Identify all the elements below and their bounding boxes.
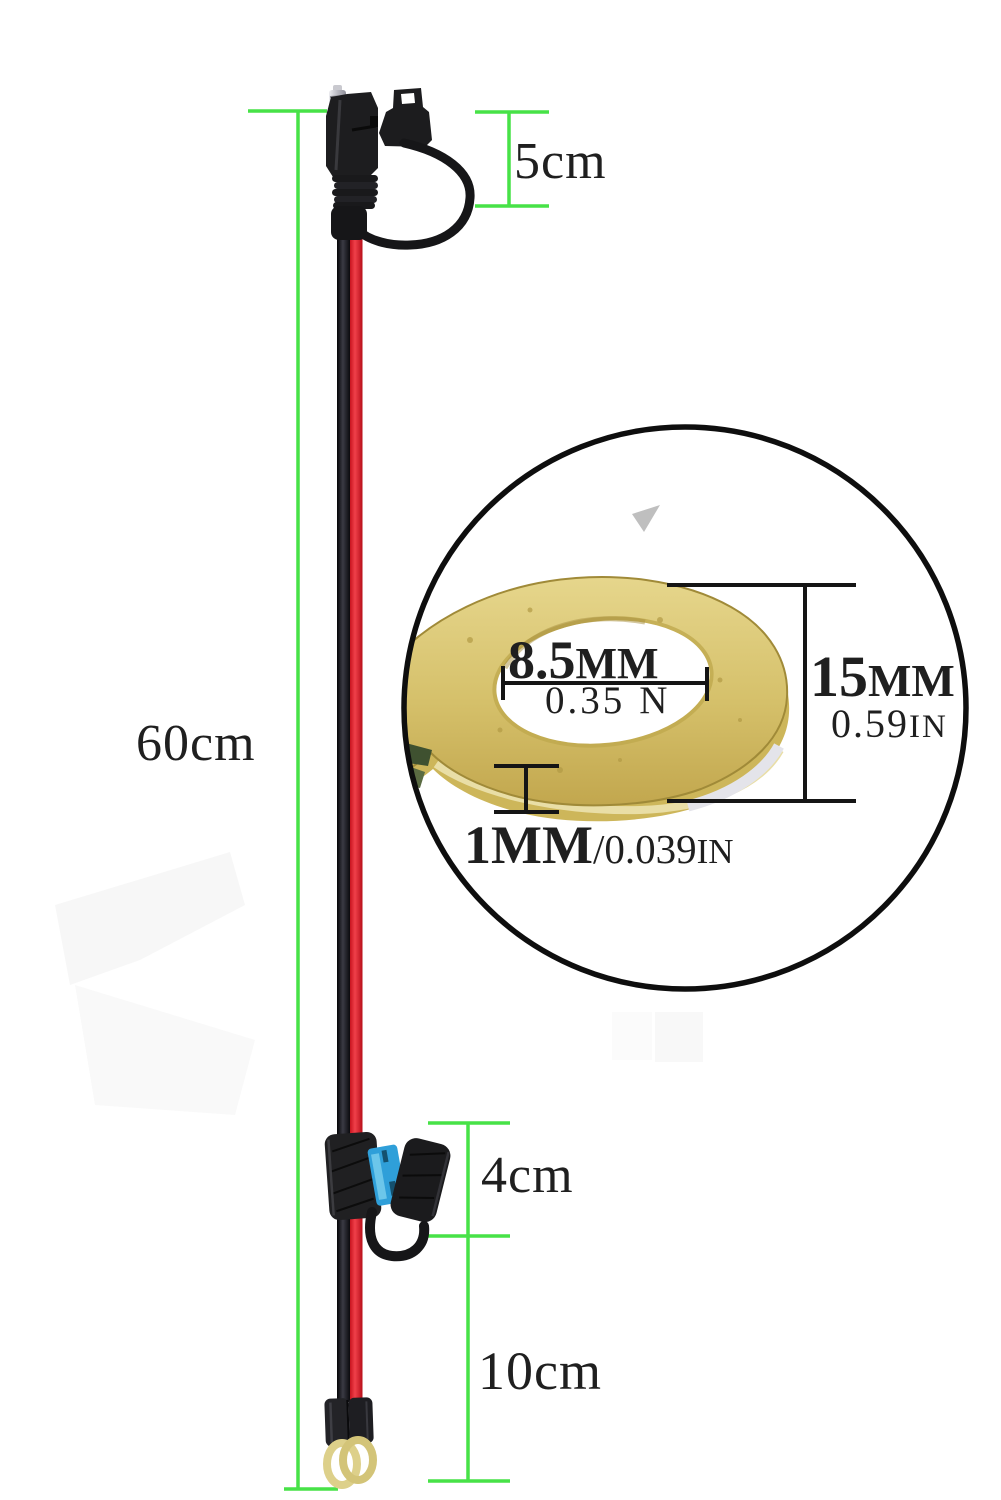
label-thickness: 1MM/0.039IN xyxy=(464,818,734,872)
outer-diameter-in-value: 0.59 xyxy=(831,704,909,744)
fuse-holder-cap xyxy=(388,1136,453,1225)
label-fuse-holder-length: 4cm xyxy=(481,1150,574,1202)
label-cable-length: 60cm xyxy=(136,718,256,770)
sae-plug-body xyxy=(326,92,378,177)
hole-diameter-in-unit: N xyxy=(639,681,670,720)
outer-diameter-in-unit: IN xyxy=(909,711,948,744)
ring-terminals xyxy=(324,1397,374,1485)
outer-diameter-value: 15 xyxy=(810,648,868,706)
outer-diameter-unit: MM xyxy=(868,658,955,704)
strain-relief-ribs xyxy=(332,175,378,209)
dim-60cm-line xyxy=(248,111,338,1489)
label-outer-diameter-in: 0.59IN xyxy=(831,704,948,744)
thickness-unit: MM xyxy=(491,818,593,872)
thickness-in-value: /0.039 xyxy=(593,829,697,870)
hole-diameter-in-value: 0.35 xyxy=(545,681,625,720)
strap-wrap xyxy=(331,206,367,240)
sae-connector xyxy=(326,85,378,209)
label-connector-length: 5cm xyxy=(514,136,607,188)
label-lead-length: 10cm xyxy=(478,1344,602,1398)
product-dimension-figure: 5cm 60cm 4cm 10cm 8.5MM 0.35N 15MM 0.59I… xyxy=(0,0,1001,1500)
thickness-value: 1 xyxy=(464,818,491,872)
label-outer-diameter-mm: 15MM xyxy=(810,648,955,706)
twin-cable xyxy=(337,204,363,1402)
thickness-in-unit: IN xyxy=(697,834,734,869)
label-hole-diameter-in: 0.35N xyxy=(545,681,670,720)
